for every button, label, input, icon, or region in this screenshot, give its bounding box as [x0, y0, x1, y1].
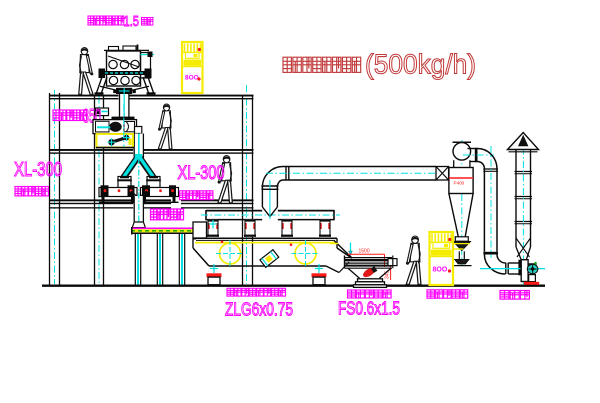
svg-text:8OO: 8OO [433, 267, 448, 274]
svg-text:1.5: 1.5 [124, 13, 140, 30]
svg-text:XL-300: XL-300 [178, 163, 225, 184]
svg-text:ZLG6x0.75: ZLG6x0.75 [225, 299, 293, 320]
svg-text:FS0.6x1.5: FS0.6x1.5 [338, 299, 400, 319]
svg-text:XL-300: XL-300 [14, 159, 62, 181]
svg-text:8OO: 8OO [185, 75, 199, 82]
svg-text:(500kg/h): (500kg/h) [365, 48, 476, 79]
svg-text:P400: P400 [454, 180, 465, 185]
svg-text:1500: 1500 [359, 248, 370, 254]
